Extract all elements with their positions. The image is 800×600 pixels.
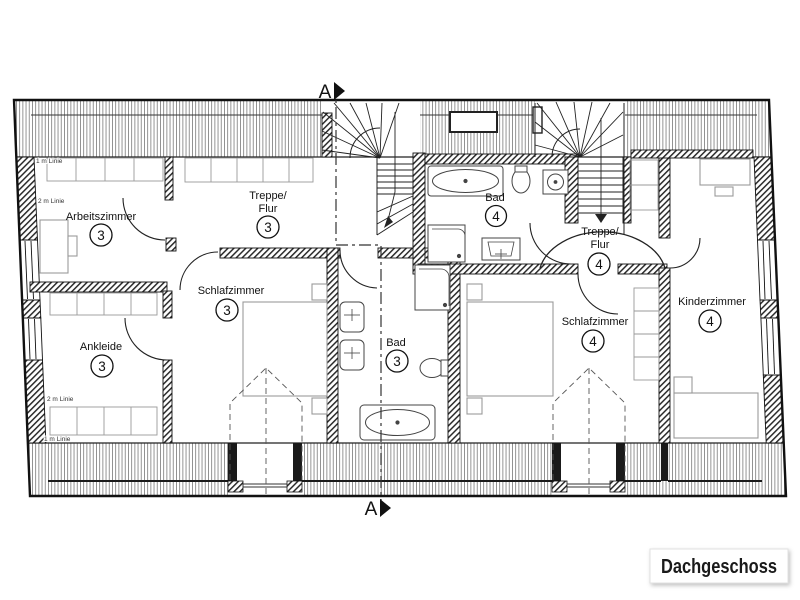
svg-text:Arbeitszimmer: Arbeitszimmer: [66, 211, 137, 223]
door-arc-schlafzimmer-4: [578, 274, 618, 314]
svg-text:3: 3: [264, 220, 272, 235]
svg-text:4: 4: [492, 209, 500, 224]
svg-text:Bad: Bad: [386, 337, 406, 349]
shower-bad-3: [415, 265, 450, 310]
svg-text:Treppe/: Treppe/: [581, 226, 619, 238]
svg-text:Treppe/: Treppe/: [249, 190, 287, 202]
sink-bad-3-lower: [340, 340, 364, 370]
floor-plan-drawing: A A 1 m Linie 2 m Linie 2 m Linie 1 m Li…: [0, 0, 800, 600]
height-line-label: 2 m Linie: [47, 396, 74, 403]
section-triangle-icon: [380, 499, 391, 517]
bed-kinderzimmer: [674, 377, 758, 438]
toilet-bad-3: [420, 359, 448, 378]
stair-arrow: [384, 216, 393, 228]
svg-text:3: 3: [97, 228, 105, 243]
door-arc-bad-4: [530, 223, 571, 264]
section-triangle-icon: [334, 82, 345, 100]
svg-text:4: 4: [595, 257, 603, 272]
room-label-bad-3: Bad 3: [386, 337, 408, 372]
apartment-divider-wall: [661, 443, 668, 481]
room-label-kinderzimmer: Kinderzimmer 4: [678, 296, 746, 332]
svg-text:4: 4: [706, 314, 714, 329]
door-arc-kinderzimmer: [670, 238, 700, 268]
height-line-label: 1 m Linie: [44, 436, 71, 443]
svg-text:3: 3: [223, 303, 231, 318]
wardrobe-schlafzimmer-4: [634, 288, 659, 380]
door-arc-ankleide: [125, 318, 167, 360]
svg-text:3: 3: [393, 354, 401, 369]
floor-title: Dachgeschoss: [661, 556, 777, 578]
svg-text:Schlafzimmer: Schlafzimmer: [198, 285, 265, 297]
wardrobe-flur-3: [185, 158, 313, 182]
room-label-schlafzimmer-4: Schlafzimmer 4: [562, 316, 629, 352]
stair-arrow: [595, 214, 607, 223]
height-line-label: 1 m Linie: [36, 158, 63, 165]
height-line-label: 2 m Linie: [38, 198, 65, 205]
top-roof-band: [15, 101, 771, 157]
chimney: [533, 107, 542, 133]
svg-text:Flur: Flur: [259, 203, 278, 215]
svg-text:Bad: Bad: [485, 192, 505, 204]
sink-bad-3-upper: [340, 302, 364, 332]
door-arc-bad-3: [340, 250, 377, 288]
room-label-bad-4: Bad 4: [485, 192, 506, 227]
toilet-bad-4: [512, 166, 530, 193]
room-label-ankleide: Ankleide 3: [80, 341, 122, 377]
svg-text:4: 4: [589, 334, 597, 349]
bed-schlafzimmer-4: [467, 284, 553, 414]
floor-plan-page: A A 1 m Linie 2 m Linie 2 m Linie 1 m Li…: [0, 0, 800, 600]
desk-kinderzimmer: [700, 159, 750, 196]
floor-title-box: Dachgeschoss: [650, 549, 788, 583]
sink-bad-4: [482, 238, 520, 260]
wardrobe-ankleide-top: [50, 293, 157, 315]
svg-text:Schlafzimmer: Schlafzimmer: [562, 316, 629, 328]
svg-text:Ankleide: Ankleide: [80, 341, 122, 353]
section-letter-bottom: A: [365, 499, 378, 520]
door-arcs: [123, 198, 700, 360]
interior-walls: [30, 113, 753, 443]
room-labels: Arbeitszimmer 3 Treppe/ Flur 3 Schlafzim…: [66, 190, 746, 377]
bed-schlafzimmer-3: [243, 284, 327, 414]
svg-text:3: 3: [98, 359, 106, 374]
furniture: [40, 159, 758, 438]
svg-text:Kinderzimmer: Kinderzimmer: [678, 296, 746, 308]
section-marker-bottom: A: [365, 499, 391, 520]
wardrobe-flur-4: [630, 160, 658, 210]
bathtub-bad-3: [360, 405, 435, 440]
roof-window: [450, 112, 497, 132]
wardrobe-ankleide-bottom: [50, 407, 157, 435]
section-letter-top: A: [319, 82, 332, 103]
washbasin-bad-4: [543, 170, 568, 194]
room-label-treppe-flur-4: Treppe/ Flur 4: [581, 226, 619, 275]
shower-bad-4: [428, 225, 465, 262]
desk-arbeitszimmer: [40, 220, 77, 273]
room-label-treppe-flur-3: Treppe/ Flur 3: [249, 190, 287, 238]
window: [23, 318, 43, 360]
svg-text:Flur: Flur: [591, 239, 610, 251]
wardrobe-arbeitszimmer: [47, 158, 163, 181]
bottom-roof-band: [28, 443, 786, 496]
